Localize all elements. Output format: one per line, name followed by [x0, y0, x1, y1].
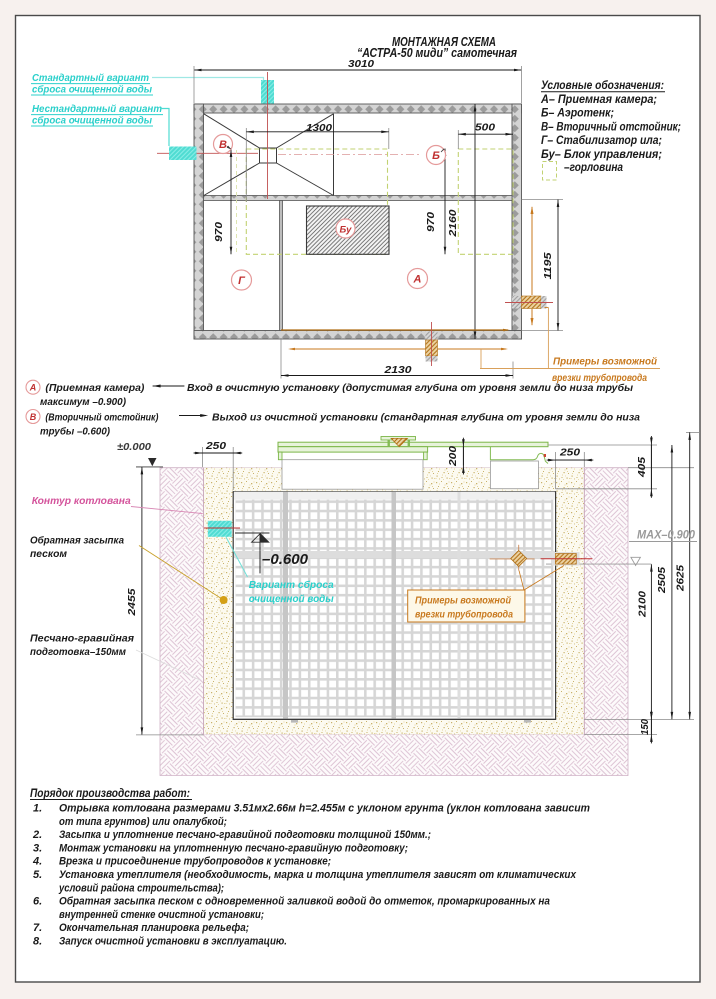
- svg-text:2505: 2505: [656, 567, 668, 594]
- svg-text:Бу: Бу: [340, 225, 353, 236]
- svg-text:подготовка–150мм: подготовка–150мм: [30, 646, 126, 658]
- svg-text:250: 250: [205, 440, 226, 452]
- svg-text:–горловина: –горловина: [564, 162, 624, 174]
- svg-text:Контур котлована: Контур котлована: [32, 495, 131, 507]
- svg-text:от типа грунтов) или опалубкой: от типа грунтов) или опалубкой;: [59, 816, 227, 828]
- svg-text:Песчано-гравийная: Песчано-гравийная: [30, 633, 134, 645]
- svg-text:максимум –0.900): максимум –0.900): [40, 396, 126, 408]
- svg-text:2455: 2455: [126, 588, 138, 616]
- svg-text:3.: 3.: [33, 842, 42, 854]
- svg-text:В: В: [30, 412, 37, 422]
- svg-text:150: 150: [639, 719, 651, 735]
- svg-text:Выход из очистной установки (с: Выход из очистной установки (стандартная…: [212, 412, 640, 424]
- svg-text:Засыпка и уплотнение песчано-г: Засыпка и уплотнение песчано-гравийной п…: [59, 829, 431, 841]
- svg-text:Врезка и присоединение трубопр: Врезка и присоединение трубопроводов к у…: [59, 856, 331, 868]
- svg-text:(Приемная камера): (Приемная камера): [45, 382, 144, 394]
- svg-text:В: В: [219, 139, 227, 151]
- svg-text:(Вторичный отстойник): (Вторичный отстойник): [45, 412, 158, 424]
- svg-text:2.: 2.: [32, 829, 42, 841]
- svg-text:“АСТРА-50 миди” самотечная: “АСТРА-50 миди” самотечная: [357, 46, 518, 60]
- svg-text:Б– Аэротенк;: Б– Аэротенк;: [541, 108, 614, 120]
- svg-text:Вход в очистную установку (доп: Вход в очистную установку (допустимая гл…: [187, 382, 633, 394]
- svg-text:Обратная засыпка: Обратная засыпка: [30, 535, 124, 547]
- svg-text:В– Вторичный отстойник;: В– Вторичный отстойник;: [541, 121, 681, 133]
- svg-text:Запуск очистной установки в эк: Запуск очистной установки в эксплуатацию…: [59, 936, 287, 948]
- svg-text:1300: 1300: [306, 122, 332, 134]
- svg-text:±0.000: ±0.000: [117, 442, 151, 453]
- svg-text:500: 500: [475, 122, 495, 134]
- svg-text:Примеры возможной: Примеры возможной: [415, 595, 511, 607]
- svg-text:5.: 5.: [33, 869, 42, 881]
- svg-text:Примеры возможной: Примеры возможной: [553, 356, 658, 368]
- svg-text:Установка утеплителя (необходи: Установка утеплителя (необходимость, мар…: [59, 869, 577, 881]
- svg-text:Б: Б: [432, 150, 440, 162]
- svg-text:970: 970: [213, 222, 225, 242]
- svg-text:405: 405: [636, 457, 648, 478]
- svg-text:1195: 1195: [542, 252, 554, 279]
- svg-text:250: 250: [559, 447, 580, 459]
- svg-text:Бу– Блок управления;: Бу– Блок управления;: [541, 149, 662, 161]
- svg-text:внутренней стенке очистной уст: внутренней стенке очистной установки;: [59, 909, 264, 921]
- svg-text:Условные обозначения:: Условные обозначения:: [541, 80, 664, 92]
- svg-text:условий района строительства);: условий района строительства);: [58, 882, 224, 894]
- svg-text:Нестандартный вариант: Нестандартный вариант: [32, 104, 162, 115]
- svg-text:Стандартный вариант: Стандартный вариант: [32, 73, 149, 84]
- svg-text:Обратная засыпка песком с одно: Обратная засыпка песком с одновременной …: [59, 896, 550, 908]
- svg-text:очищенной воды: очищенной воды: [249, 593, 334, 605]
- svg-text:4.: 4.: [32, 856, 42, 868]
- svg-text:Г– Стабилизатор ила;: Г– Стабилизатор ила;: [541, 135, 662, 147]
- svg-text:970: 970: [425, 212, 437, 232]
- svg-text:2130: 2130: [383, 364, 411, 376]
- svg-text:Окончательная планировка релье: Окончательная планировка рельефа;: [59, 922, 249, 934]
- svg-text:MAX–0.900: MAX–0.900: [637, 530, 696, 542]
- svg-text:6.: 6.: [33, 896, 42, 908]
- svg-text:2100: 2100: [637, 591, 649, 618]
- svg-text:трубы –0.600): трубы –0.600): [40, 426, 110, 438]
- svg-text:песком: песком: [30, 548, 67, 560]
- svg-text:врезки трубопровода: врезки трубопровода: [415, 609, 513, 621]
- svg-text:А– Приемная камера;: А– Приемная камера;: [540, 94, 657, 106]
- svg-text:2160: 2160: [447, 209, 459, 237]
- svg-text:Порядок производства работ:: Порядок производства работ:: [30, 788, 190, 800]
- svg-text:А: А: [29, 383, 37, 393]
- svg-text:1.: 1.: [33, 803, 42, 815]
- svg-text:2625: 2625: [675, 565, 687, 592]
- svg-text:сброса очищенной воды: сброса очищенной воды: [32, 84, 152, 96]
- svg-text:200: 200: [447, 446, 459, 467]
- svg-text:Вариант сброса: Вариант сброса: [249, 579, 334, 591]
- svg-text:3010: 3010: [348, 58, 374, 70]
- svg-text:А: А: [413, 274, 422, 286]
- svg-text:сброса очищенной воды: сброса очищенной воды: [32, 115, 152, 127]
- svg-text:Монтаж установки на уплотненну: Монтаж установки на уплотненную песчано-…: [59, 842, 408, 854]
- svg-text:Отрывка котлована размерами 3.: Отрывка котлована размерами 3.51мх2.66м …: [59, 803, 590, 815]
- svg-text:7.: 7.: [33, 922, 42, 934]
- svg-text:–0.600: –0.600: [262, 552, 308, 568]
- svg-text:8.: 8.: [33, 936, 42, 948]
